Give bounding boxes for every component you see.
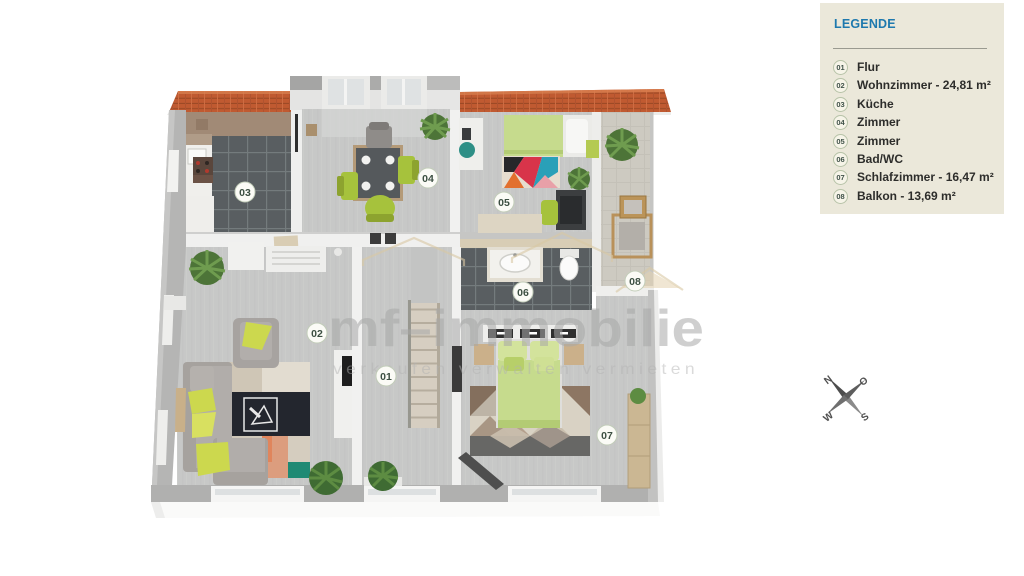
svg-text:02: 02 [311, 328, 323, 340]
svg-text:W: W [822, 410, 837, 425]
svg-text:O: O [858, 375, 871, 389]
svg-text:04: 04 [422, 173, 434, 185]
svg-text:mf–immobilie: mf–immobilie [328, 300, 704, 358]
svg-text:07: 07 [601, 430, 613, 442]
svg-text:01: 01 [380, 371, 392, 383]
svg-text:03: 03 [239, 187, 251, 199]
svg-text:06: 06 [517, 287, 529, 299]
svg-text:S: S [859, 411, 871, 424]
svg-text:N: N [822, 374, 834, 387]
svg-text:08: 08 [629, 276, 641, 288]
svg-text:05: 05 [498, 197, 510, 209]
